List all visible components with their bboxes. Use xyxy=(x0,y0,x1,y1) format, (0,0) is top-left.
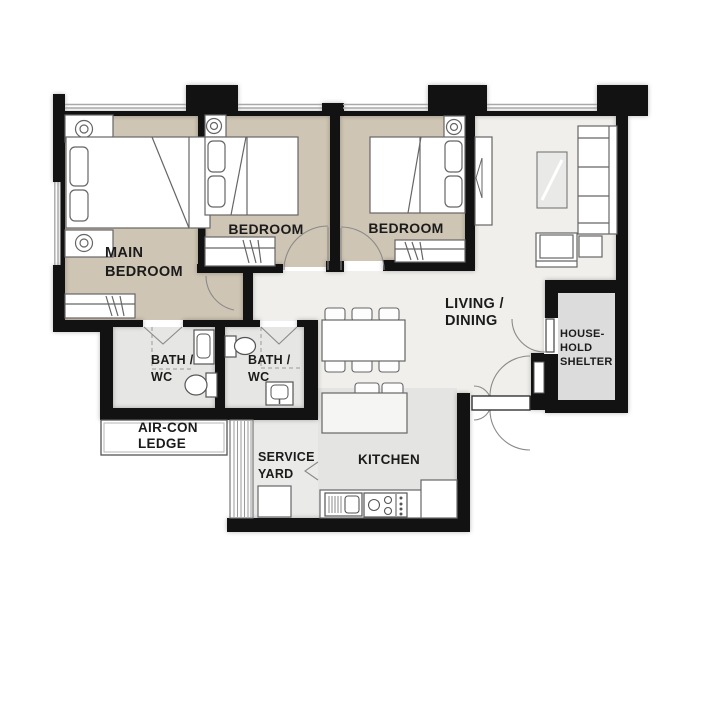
island-counter xyxy=(322,393,407,433)
wall xyxy=(100,408,318,420)
aircon-label-line1: AIR-CON xyxy=(138,420,198,435)
pillow xyxy=(70,190,88,221)
armchair xyxy=(536,233,577,267)
dining-chair xyxy=(325,308,345,321)
shelter-label-line3: SHELTER xyxy=(560,356,613,368)
entrance-door-leaf xyxy=(472,396,530,410)
wall xyxy=(227,518,470,532)
shelter-label-line1: HOUSE- xyxy=(560,328,605,340)
wall-pier xyxy=(186,85,238,116)
toilet-cistern xyxy=(206,373,217,397)
wall xyxy=(183,320,260,327)
bath2-label-line2: WC xyxy=(248,370,269,384)
side-table xyxy=(579,236,602,257)
sink-icon xyxy=(325,493,362,516)
window-inner-line xyxy=(487,111,597,116)
service-yard-label-line1: SERVICE xyxy=(258,450,315,464)
living-label-line1: LIVING / xyxy=(445,296,504,312)
bath1-label-line2: WC xyxy=(151,370,172,384)
pillow xyxy=(208,141,225,172)
living-label-line2: DINING xyxy=(445,313,498,329)
main-bedroom-label-line2: BEDROOM xyxy=(105,264,183,280)
wall xyxy=(457,393,470,532)
bedroom1-label: BEDROOM xyxy=(228,221,303,237)
wall xyxy=(330,111,340,272)
bedroom2-label: BEDROOM xyxy=(368,220,443,236)
dining-chair xyxy=(352,308,372,321)
louvre-screen xyxy=(230,420,253,518)
wall xyxy=(616,116,628,280)
main-bedroom-label-line1: MAIN xyxy=(105,245,143,261)
main-bedroom-alcove-floor xyxy=(198,273,243,320)
window-inner-line xyxy=(343,111,428,116)
wall xyxy=(243,264,253,322)
wall-pier xyxy=(428,85,487,116)
floor-plan-drawing: MAIN BEDROOM BEDROOM BEDROOM LIVING / DI… xyxy=(0,0,703,701)
wall xyxy=(53,94,65,182)
wardrobe xyxy=(65,294,135,318)
stove-icon xyxy=(364,493,407,517)
sofa xyxy=(578,126,617,234)
toilet-icon xyxy=(185,375,207,395)
service-yard-label-line2: YARD xyxy=(258,467,293,481)
pillow xyxy=(70,147,88,186)
window-inner-line xyxy=(238,111,322,116)
floor-plan: MAIN BEDROOM BEDROOM BEDROOM LIVING / DI… xyxy=(0,0,703,701)
wall xyxy=(113,320,143,327)
aircon-label-line2: LEDGE xyxy=(138,436,186,451)
pillow xyxy=(445,176,462,207)
wall-pier xyxy=(597,85,648,116)
kitchen-label: KITCHEN xyxy=(358,452,420,467)
pillow xyxy=(445,141,462,172)
washing-machine xyxy=(258,486,291,517)
dining-chair xyxy=(379,308,399,321)
toilet-icon xyxy=(235,338,256,355)
bath2-label-line1: BATH / xyxy=(248,353,291,367)
dining-table xyxy=(322,320,405,361)
wall xyxy=(465,116,475,271)
wall xyxy=(100,320,113,420)
wall-niche xyxy=(534,362,544,393)
bath1-label-line1: BATH / xyxy=(151,353,194,367)
kitchen-counter-corner xyxy=(421,480,457,518)
window-inner-line xyxy=(61,182,66,265)
wardrobe xyxy=(205,237,275,266)
pillow xyxy=(208,176,225,207)
wall xyxy=(304,322,318,418)
shelter-label-line2: HOLD xyxy=(560,342,592,354)
shelter-door-leaf xyxy=(546,319,554,352)
entrance-door-arc-out xyxy=(490,410,530,450)
